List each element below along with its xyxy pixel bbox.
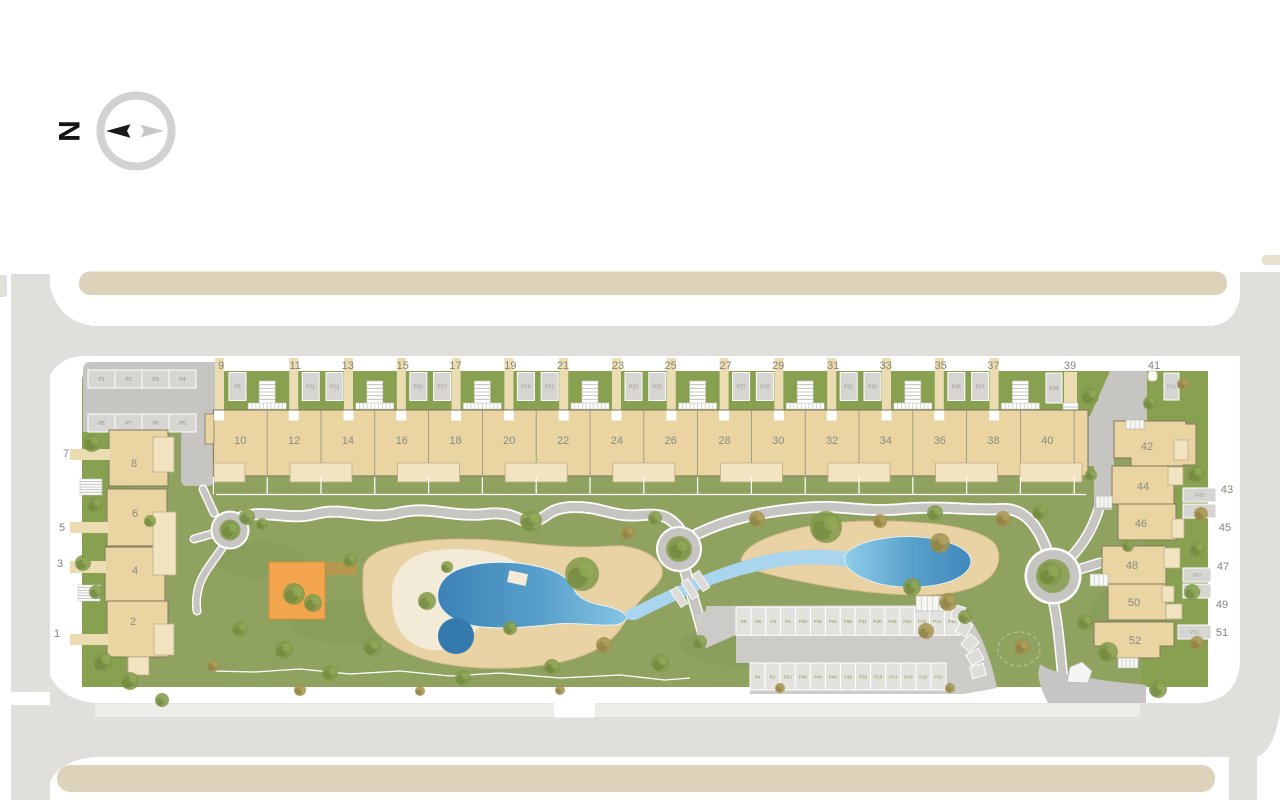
svg-text:P17: P17	[437, 384, 446, 390]
svg-text:28: 28	[718, 435, 730, 447]
svg-text:P50: P50	[799, 619, 808, 624]
svg-text:P28: P28	[874, 674, 883, 679]
svg-text:1: 1	[54, 628, 60, 640]
svg-text:P6: P6	[152, 421, 158, 427]
svg-text:P30: P30	[873, 619, 882, 624]
svg-text:43: 43	[1221, 484, 1233, 496]
svg-text:33: 33	[880, 360, 892, 372]
svg-text:46: 46	[1135, 518, 1147, 530]
svg-text:52: 52	[1129, 635, 1141, 647]
svg-text:P43: P43	[1195, 493, 1204, 499]
svg-text:P4: P4	[179, 377, 185, 383]
svg-text:4: 4	[132, 565, 138, 577]
svg-text:7: 7	[63, 448, 69, 460]
svg-text:P16: P16	[919, 674, 928, 679]
svg-text:P21: P21	[545, 384, 554, 390]
svg-text:P25: P25	[653, 384, 662, 390]
svg-text:12: 12	[288, 435, 300, 447]
svg-text:P44: P44	[814, 674, 823, 679]
svg-text:P38: P38	[844, 619, 853, 624]
svg-text:42: 42	[1141, 441, 1153, 453]
svg-text:17: 17	[449, 360, 461, 372]
svg-text:P20: P20	[904, 674, 913, 679]
svg-text:24: 24	[611, 435, 623, 447]
svg-text:27: 27	[719, 360, 731, 372]
svg-text:13: 13	[342, 360, 354, 372]
svg-text:9: 9	[218, 360, 224, 372]
svg-text:P9: P9	[234, 384, 240, 390]
svg-text:R1: R1	[785, 619, 791, 624]
svg-text:P22: P22	[903, 619, 912, 624]
svg-text:P3: P3	[152, 377, 158, 383]
svg-text:50: 50	[1128, 597, 1140, 609]
svg-text:25: 25	[664, 360, 676, 372]
svg-text:26: 26	[665, 435, 677, 447]
svg-text:P2: P2	[125, 377, 131, 383]
svg-text:P7: P7	[125, 421, 131, 427]
svg-text:10: 10	[234, 435, 246, 447]
svg-text:P31: P31	[844, 384, 853, 390]
svg-text:32: 32	[826, 435, 838, 447]
svg-text:14: 14	[342, 435, 354, 447]
svg-text:19: 19	[504, 360, 516, 372]
svg-text:P41: P41	[1167, 384, 1176, 390]
svg-text:41: 41	[1148, 360, 1160, 372]
svg-text:8: 8	[131, 458, 137, 470]
svg-text:P48: P48	[799, 674, 808, 679]
svg-text:R4: R4	[755, 674, 761, 679]
svg-text:30: 30	[772, 435, 784, 447]
svg-text:21: 21	[557, 360, 569, 372]
svg-text:P52: P52	[784, 674, 793, 679]
svg-text:35: 35	[935, 360, 947, 372]
svg-text:37: 37	[987, 360, 999, 372]
svg-text:P12: P12	[934, 674, 943, 679]
svg-text:2: 2	[130, 616, 136, 628]
svg-text:R3: R3	[770, 619, 776, 624]
svg-text:P37: P37	[975, 384, 984, 390]
svg-text:P26: P26	[888, 619, 897, 624]
svg-text:R5: R5	[755, 619, 761, 624]
svg-text:P24: P24	[889, 674, 898, 679]
svg-text:29: 29	[772, 360, 784, 372]
svg-text:P14: P14	[933, 619, 942, 624]
svg-text:44: 44	[1137, 481, 1149, 493]
svg-text:P8: P8	[98, 421, 104, 427]
svg-text:P32: P32	[859, 674, 868, 679]
svg-text:P35: P35	[952, 384, 961, 390]
svg-text:36: 36	[934, 435, 946, 447]
svg-text:11: 11	[289, 360, 300, 372]
svg-text:R2: R2	[770, 674, 776, 679]
svg-text:P1: P1	[98, 377, 104, 383]
svg-text:45: 45	[1219, 522, 1231, 534]
svg-text:22: 22	[557, 435, 569, 447]
svg-text:P29: P29	[760, 384, 769, 390]
svg-text:5: 5	[59, 522, 65, 534]
svg-text:16: 16	[396, 435, 408, 447]
svg-text:P40: P40	[829, 674, 838, 679]
svg-text:P23: P23	[629, 384, 638, 390]
svg-text:34: 34	[880, 435, 892, 447]
svg-text:P27: P27	[736, 384, 745, 390]
svg-text:23: 23	[612, 360, 624, 372]
svg-text:P19: P19	[521, 384, 530, 390]
svg-text:47: 47	[1217, 561, 1229, 573]
svg-text:20: 20	[503, 435, 515, 447]
svg-text:P11: P11	[306, 384, 315, 390]
svg-text:48: 48	[1126, 560, 1138, 572]
svg-text:P39: P39	[1049, 386, 1058, 392]
svg-text:P36: P36	[844, 674, 853, 679]
svg-text:51: 51	[1216, 627, 1228, 639]
svg-text:P5: P5	[179, 421, 185, 427]
svg-text:6: 6	[132, 508, 138, 520]
svg-text:40: 40	[1041, 435, 1053, 447]
svg-text:N: N	[54, 120, 87, 142]
svg-text:P33: P33	[868, 384, 877, 390]
svg-text:P34: P34	[859, 619, 868, 624]
svg-text:P46: P46	[814, 619, 823, 624]
svg-text:18: 18	[449, 435, 461, 447]
svg-text:P15: P15	[414, 384, 423, 390]
svg-text:3: 3	[57, 558, 63, 570]
svg-text:39: 39	[1064, 360, 1076, 372]
svg-text:P42: P42	[829, 619, 838, 624]
svg-text:P13: P13	[330, 384, 339, 390]
svg-text:P51: P51	[1190, 630, 1199, 636]
svg-text:15: 15	[397, 360, 409, 372]
svg-text:49: 49	[1216, 599, 1228, 611]
svg-text:31: 31	[827, 360, 839, 372]
svg-text:38: 38	[987, 435, 999, 447]
svg-text:R6: R6	[740, 619, 746, 624]
svg-text:P47: P47	[1192, 573, 1201, 579]
